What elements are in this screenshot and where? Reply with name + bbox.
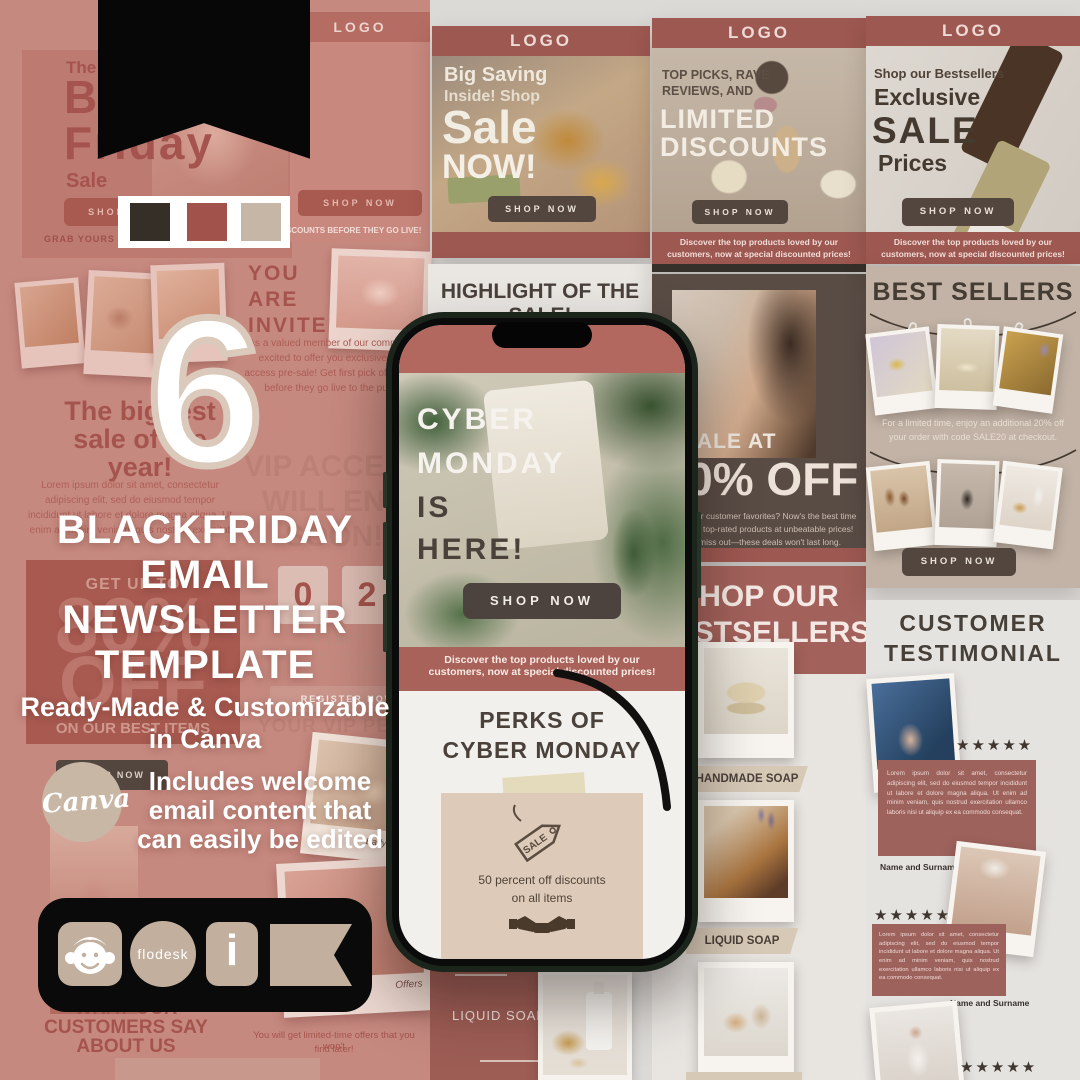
polaroid-photo [951,846,1040,935]
tag-partial [686,1072,802,1080]
big-saving-line4: NOW! [442,150,536,184]
polaroid-photo [875,1006,960,1080]
email-limited-panel: LOGO TOP PICKS, RAVE REVIEWS, AND LIMITE… [652,18,866,272]
mailchimp-monkey-icon [58,922,122,986]
polaroid-photo [871,678,955,769]
best-sellers-polaroid [935,459,1000,547]
polaroid-photo [870,465,932,533]
tag-handmade-soap: HANDMADE SOAP [686,766,808,792]
testimonial-polaroid [869,1000,966,1080]
divider-line [480,1060,538,1062]
polaroid-photo [939,463,995,529]
best-sellers-polaroid [935,324,1000,410]
flodesk-logo-label: flodesk [130,921,196,987]
hero-line-is: IS [417,491,451,525]
bestcol-polaroid-handmade [698,642,794,758]
limited-big-line: LIMITED [660,104,775,135]
exclusive-line2: SALE [872,110,979,152]
photo [543,975,627,1075]
big-saving-footer-bar [432,232,650,258]
limited-shop-now-button[interactable]: SHOP NOW [692,200,788,224]
limited-footer-line: customers, now at special discounted pri… [652,248,866,260]
star-rating: ★★★★★ [956,736,1033,754]
what-our-line: ABOUT US [36,1036,216,1058]
main-title-line: BLACKFRIDAY [25,508,385,553]
promo-line: For a limited time, enjoy an additional … [876,418,1070,428]
best-sellers-title: BEST SELLERS [866,278,1080,307]
color-swatch-dark [130,203,170,241]
golive-text: DISCOUNTS BEFORE THEY GO LIVE! [278,226,430,236]
hero-line-monday: MONDAY [417,447,566,481]
bestcol-polaroid-liquid [698,800,794,922]
template-count: 6 [110,292,300,492]
exclusive-footer-bar: Discover the top products loved by our c… [866,232,1080,264]
subtitle-line: Ready-Made & Customizable [15,692,395,723]
phone-notch [492,322,592,348]
testimonial-quote: Lorem ipsum dolor sit amet, consectetur … [878,760,1036,827]
polaroid-photo [704,968,788,1056]
polaroid-photo [999,331,1059,396]
big-saving-line1: Big Saving [444,64,547,87]
polaroid-photo [870,331,933,397]
phone-button [697,512,701,598]
tag-liquid-soap: LIQUID SOAP [686,928,798,954]
email-best-sellers-panel: BEST SELLERS For a limited time, enjoy a… [866,266,1080,588]
main-title-line: NEWSLETTER [25,598,385,643]
main-title-line: TEMPLATE [25,643,385,688]
phone-screen: CYBER MONDAY IS HERE! SHOP NOW Discover … [399,325,685,959]
note-line: can easily be edited [122,824,398,855]
polaroid [14,277,85,368]
bf-grab-yours-text: GRAB YOURS W [44,234,128,244]
limited-big-line: DISCOUNTS [660,132,828,163]
exclusive-footer-line: customers, now at special discounted pri… [866,248,1080,260]
email-two-logo-bar: LOGO [290,12,430,42]
best-sellers-polaroid [993,326,1064,414]
limited-footer-line: Discover the top products loved by our [652,232,866,248]
main-title-line: EMAIL [25,553,385,598]
note-line: email content that [122,795,398,826]
limited-logo-bar: LOGO [652,18,866,48]
hero-line-cyber: CYBER [417,403,537,437]
limited-footer-bar: Discover the top products loved by our c… [652,232,866,264]
big-saving-logo-bar: LOGO [432,26,650,56]
testimonial-title-line: CUSTOMER [866,610,1080,637]
exclusive-intro: Shop our Bestsellers [874,66,1004,81]
card-line: 50 percent off discounts [441,873,643,887]
phone-shop-now-button[interactable]: SHOP NOW [463,583,621,619]
flodesk-logo: flodesk [130,921,196,987]
flag-logo-icon [270,924,352,986]
card-line: on all items [441,891,643,905]
dispenser-pump [594,982,604,994]
phone-button [383,472,387,508]
limited-dark-strip [652,264,866,272]
polaroid-photo [704,806,788,898]
email-exclusive-panel: LOGO Shop our Bestsellers Exclusive SALE… [866,16,1080,264]
liquid-soap-photo [538,970,632,1080]
exclusive-line3: Prices [878,150,947,177]
bestcol-polaroid-three [698,962,794,1080]
note-line: Includes welcome [122,766,398,797]
subtitle-line: in Canva [15,724,395,755]
email-big-saving-panel: LOGO Big Saving Inside! Shop Sale NOW! S… [432,26,650,258]
big-saving-shop-now-button[interactable]: SHOP NOW [488,196,596,222]
star-rating: ★★★★★ [960,1058,1037,1076]
best-sellers-shop-now-button[interactable]: SHOP NOW [902,548,1016,576]
liquid-soap-label: LIQUID SOAP [452,1008,546,1023]
photo-strip [115,1058,320,1080]
star-rating: ★★★★★ [874,906,951,924]
big-saving-line3: Sale [442,104,537,150]
testimonial-quote-box: Lorem ipsum dolor sit amet, consectetur … [872,924,1006,996]
best-sellers-polaroid [993,461,1063,550]
bf-word-sale: Sale [66,170,107,193]
platform-bar: flodesk i [38,898,372,1012]
email-two-shop-now-button[interactable]: SHOP NOW [298,190,422,216]
promo-line: your order with code SALE20 at checkout. [876,432,1070,442]
limited-intro-line: TOP PICKS, RAVE [662,68,770,82]
i-logo-label: i [206,922,258,980]
dispenser-photo [586,992,612,1050]
polaroid-photo [20,283,79,347]
color-swatch-beige [241,203,281,241]
polaroid-photo [704,648,788,734]
hero-line-here: HERE! [417,533,525,567]
exclusive-logo-bar: LOGO [866,16,1080,46]
divider-line [455,974,507,976]
mailchimp-logo [58,922,122,986]
poster-canvas: The Black- Friday Sale SHOP NOW GRAB YOU… [0,0,1080,1080]
canva-logo: Canva [42,762,122,842]
i-logo: i [206,922,258,986]
canva-logo-label: Canva [39,759,124,844]
glasses-cord-photo [539,655,685,815]
testimonial-title-line: TESTIMONIAL [866,640,1080,667]
highlight-title-line: HIGHLIGHT OF THE [428,280,652,304]
exclusive-footer-line: Discover the top products loved by our [866,232,1080,248]
exclusive-shop-now-button[interactable]: SHOP NOW [902,198,1014,226]
best-sellers-polaroid [866,461,938,551]
exclusive-line1: Exclusive [874,84,980,111]
offers-note-line: find later! [246,1044,422,1055]
limited-intro-line: REVIEWS, AND [662,84,753,98]
polaroid-photo [999,465,1058,531]
handshake-icon [509,913,575,947]
color-swatch-mauve [187,203,227,241]
offers-caption: Offers [395,979,423,991]
testimonial-quote: Lorem ipsum dolor sit amet, consectetur … [872,924,1006,990]
testimonial-name: Name and Surname [950,998,1029,1008]
best-sellers-polaroid [865,326,939,415]
testimonial-name: Name and Surname [880,862,959,872]
color-palette-strip [118,196,290,248]
polaroid-photo [336,256,424,331]
polaroid-photo [939,328,995,392]
